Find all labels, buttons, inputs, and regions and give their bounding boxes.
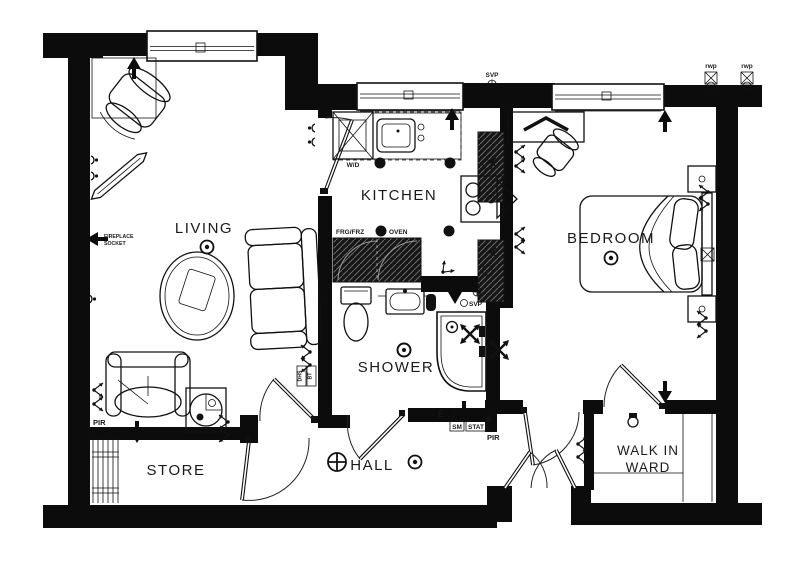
- socket-icon: [91, 156, 98, 164]
- switch-icon: [697, 324, 708, 338]
- living-label: LIVING: [175, 220, 233, 237]
- rwp-right-label: rwp: [741, 63, 753, 70]
- switch-icon: [219, 415, 230, 429]
- toilet: [341, 287, 371, 341]
- coffee-table: [160, 252, 234, 340]
- svp-top-label: SVP: [485, 72, 499, 79]
- fireplace-label-line2: SOCKET: [104, 241, 126, 247]
- switch-icon: [514, 240, 525, 254]
- side-table-fan: [186, 388, 226, 432]
- hall-ceiling-rose-icon: [328, 453, 346, 471]
- socket-icon: [91, 172, 98, 180]
- smoke-detector-label: SM: [452, 424, 462, 431]
- kitchen-counter-top: [333, 112, 461, 160]
- bedside-table-top: [688, 166, 716, 192]
- hall-light-icon: [409, 456, 422, 469]
- shower-light-icon: [398, 344, 411, 357]
- kitchen-label: KITCHEN: [361, 187, 437, 204]
- fireplace-label-line1: FIREPLACE: [104, 234, 134, 240]
- living-armchair-bottom: [106, 352, 190, 417]
- dhs-label: DHS: [298, 370, 304, 381]
- switch-icon: [699, 197, 710, 211]
- store-shelving: [92, 437, 119, 503]
- bedroom-label: BEDROOM: [567, 230, 655, 247]
- walkin-label-line1: WALK IN: [617, 443, 679, 458]
- pir-hall-label: PIR: [487, 433, 500, 442]
- downlight: [375, 158, 386, 169]
- store-label: STORE: [147, 462, 206, 479]
- switch-icon: [514, 227, 525, 241]
- pir-living-label: PIR: [93, 418, 106, 427]
- svp-shower-label: SVP: [469, 301, 483, 308]
- arrow-icon: [658, 381, 672, 403]
- bedroom-light-icon: [605, 252, 618, 265]
- entrance-double-door: [505, 450, 575, 488]
- downlight: [445, 158, 456, 169]
- downlight: [444, 226, 455, 237]
- desk-chair: [528, 125, 582, 182]
- living-light-icon: [201, 241, 214, 254]
- bedroom-door: [521, 407, 579, 465]
- wardrobe-door: [604, 365, 665, 409]
- switch-icon: [301, 345, 312, 359]
- bt-label: BT: [308, 372, 314, 380]
- switch-icon: [514, 159, 525, 173]
- kitchen-window: [357, 83, 463, 111]
- sofa: [245, 226, 322, 350]
- basin: [378, 289, 432, 314]
- shower-label: SHOWER: [358, 359, 435, 376]
- socket-icon: [308, 124, 315, 132]
- floor-plan: LIVING KITCHEN BEDROOM SHOWER HALL STORE…: [0, 0, 801, 570]
- socket-icon: [89, 295, 96, 303]
- walkin-label-line2: WARD: [626, 460, 671, 475]
- hall-label: HALL: [350, 457, 394, 474]
- shower-enclosure: [437, 312, 486, 391]
- bedroom-window: [552, 84, 664, 111]
- svp-boxing: [426, 294, 436, 311]
- oven-label: OVEN: [389, 229, 408, 236]
- store-door: [242, 437, 309, 500]
- thermostat-label: STAT: [468, 424, 484, 431]
- socket-icon: [308, 138, 315, 146]
- wardrobe-pendant-light: [628, 413, 638, 427]
- arrow-icon: [658, 110, 672, 132]
- downlight: [376, 226, 387, 237]
- shower-door: [347, 410, 405, 459]
- switch-icon: [92, 383, 103, 397]
- washer-dryer: [333, 112, 373, 159]
- vent-arrows-icon: [460, 324, 480, 344]
- wardrobe-rail: [594, 414, 712, 502]
- kitchen-base-counter: [333, 238, 421, 282]
- rwp-left-label: rwp: [705, 63, 717, 70]
- switch-icon: [437, 261, 454, 278]
- svp-top-icon: [488, 80, 496, 88]
- switch-icon: [697, 311, 708, 325]
- switch-icon: [92, 397, 103, 411]
- bedside-table-bottom: [688, 296, 716, 322]
- emergency-label: E: [438, 409, 444, 419]
- fridge-freezer-label: FRG/FRZ: [336, 229, 364, 236]
- arrow-icon: [127, 57, 141, 79]
- floor-plan-canvas: LIVING KITCHEN BEDROOM SHOWER HALL STORE…: [0, 0, 801, 570]
- switch-icon: [514, 145, 525, 159]
- living-window: [147, 31, 257, 61]
- washer-dryer-label: W/D: [347, 162, 360, 169]
